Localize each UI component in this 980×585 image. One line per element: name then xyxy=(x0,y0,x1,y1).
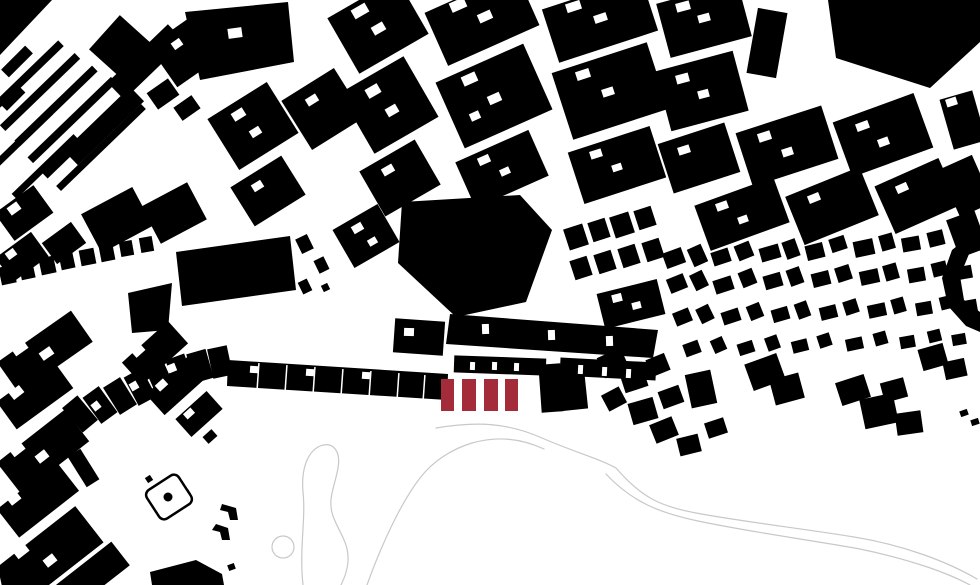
building-footprint xyxy=(961,299,978,313)
courtyard xyxy=(306,369,314,377)
building-footprint xyxy=(895,410,924,435)
courtyard xyxy=(514,363,519,371)
courtyard xyxy=(606,336,613,346)
courtyard xyxy=(578,365,583,374)
building-footprint xyxy=(899,335,916,349)
building-footprint xyxy=(915,301,933,317)
building-footprint xyxy=(99,244,116,262)
courtyard xyxy=(227,27,242,39)
building-footprint xyxy=(955,265,973,281)
courtyard xyxy=(362,372,370,380)
courtyard xyxy=(470,362,475,370)
site-building-highlight xyxy=(462,379,476,411)
courtyard xyxy=(482,324,489,334)
courtyard xyxy=(404,328,414,336)
building-footprint xyxy=(119,240,134,257)
building-footprint xyxy=(454,355,547,375)
courtyard xyxy=(626,369,631,378)
courtyard xyxy=(548,330,555,340)
site-building-highlight xyxy=(441,379,454,411)
site-building-highlight xyxy=(505,379,518,411)
building-footprint xyxy=(393,318,445,355)
courtyard xyxy=(602,367,607,376)
courtyard xyxy=(250,366,258,374)
building-footprint xyxy=(79,248,97,267)
building-footprint xyxy=(139,236,154,253)
courtyard xyxy=(492,362,497,370)
figure-ground-map xyxy=(0,0,980,585)
building-dot xyxy=(164,493,173,502)
site-building-highlight xyxy=(484,379,498,411)
building-footprint xyxy=(907,267,926,284)
map-canvas xyxy=(0,0,980,585)
